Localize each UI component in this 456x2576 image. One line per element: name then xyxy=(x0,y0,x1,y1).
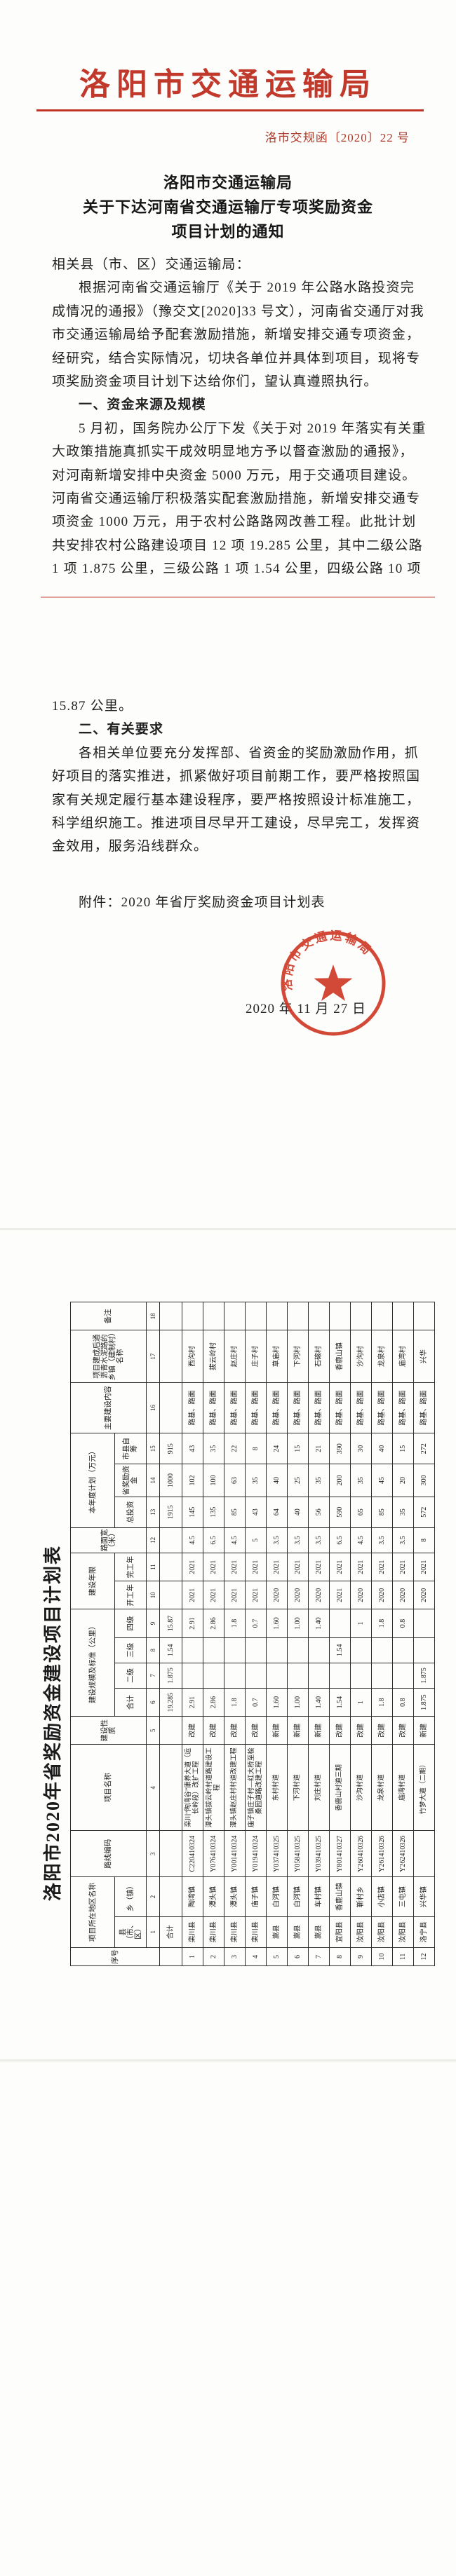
table-cell: 2020 xyxy=(309,1581,330,1609)
table-cell: 栾川县 xyxy=(182,1916,203,1947)
table-cell: 赵庄村 xyxy=(224,1330,246,1382)
body-line: 各相关单位要充分发挥部、省资金的奖励激励作用，抓 xyxy=(52,742,436,765)
table-cell: 145 xyxy=(182,1497,203,1527)
document-title: 洛阳市交通运输局关于下达河南省交通运输厅专项奖励资金项目计划的通知 xyxy=(0,170,456,244)
doc-title-line: 洛阳市交通运输局 xyxy=(0,170,456,195)
body-line: 项奖励资金项目计划下达给你们，望认真遵照执行。 xyxy=(52,370,436,393)
table-cell xyxy=(393,1663,414,1688)
attachment-line: 附件：2020 年省厅奖励资金项目计划表 xyxy=(79,892,326,911)
body-line: 成情况的通报》（豫交文[2020]33 号文），河南省交通厅对我 xyxy=(52,300,436,323)
table-group-header: 项目名称 xyxy=(71,1745,147,1831)
table-cell: 宜阳县 xyxy=(330,1916,351,1947)
table-cell: 35 xyxy=(393,1497,414,1527)
table-cell xyxy=(309,1663,330,1688)
table-sub-header: 市县自筹 xyxy=(115,1433,147,1464)
table-cell: 香鹿山村道三期 xyxy=(330,1745,351,1831)
table-cell: 12 xyxy=(414,1947,435,1965)
table-cell: 庙湾村道 xyxy=(393,1745,414,1831)
table-cell: 1.875 xyxy=(160,1663,182,1688)
table-cell: 1.875 xyxy=(414,1688,435,1716)
table-cell: 3.5 xyxy=(267,1527,288,1553)
table-cell xyxy=(351,1663,372,1688)
body-line: 项资金 1000 万元，用于农村公路路网改善工程。此批计划 xyxy=(52,510,436,533)
body-text-page1: 相关县（市、区）交通运输局：根据河南省交通运输厅《关于 2019 年公路水路投资… xyxy=(52,253,436,580)
table-cell: 改建 xyxy=(203,1717,224,1745)
table-cell: 15 xyxy=(393,1433,414,1464)
table-cell: Y019410324 xyxy=(246,1831,267,1877)
table-cell: 1.875 xyxy=(414,1663,435,1688)
table-column-number: 15 xyxy=(147,1433,160,1464)
table-cell: 潭头镇赵庄村村道改建工程 xyxy=(224,1745,246,1831)
table-cell xyxy=(351,1637,372,1663)
table-cell: 1.8 xyxy=(224,1688,246,1716)
body-line: 5 月初，国务院办公厅下发《关于对 2019 年落实有关重 xyxy=(52,417,436,440)
table-cell: 7 xyxy=(309,1947,330,1965)
table-cell: 靳村乡 xyxy=(351,1877,372,1916)
table-cell xyxy=(203,1637,224,1663)
table-cell: 6 xyxy=(288,1947,309,1965)
table-cell: Y261410326 xyxy=(372,1831,393,1877)
table-cell: 路基、路面 xyxy=(372,1382,393,1433)
table-cell: 改建 xyxy=(372,1717,393,1745)
body-line: 经研究，结合实际情况，切块各单位并具体到项目，现将专 xyxy=(52,347,436,370)
table-cell: 20 xyxy=(393,1464,414,1497)
table-cell: 300 xyxy=(414,1464,435,1497)
table-cell: 43 xyxy=(246,1497,267,1527)
table-cell: 200 xyxy=(330,1464,351,1497)
table-cell: 陶湾镇 xyxy=(182,1877,203,1916)
table-cell: Y039410325 xyxy=(309,1831,330,1877)
table-cell: 龙泉村 xyxy=(372,1330,393,1382)
appendix-table-landscape: 洛阳市2020年省奖励资金建设项目计划表 序号项目所在地区名称路线编码项目名称建… xyxy=(39,1298,442,1968)
table-cell xyxy=(160,1382,182,1433)
table-sub-header: 总投资 xyxy=(115,1497,147,1527)
body-line: 好项目的落实推进，抓紧做好项目前期工作，要严格按照国 xyxy=(52,765,436,788)
table-cell: 合计 xyxy=(160,1916,182,1947)
table-cell: 19.285 xyxy=(160,1688,182,1716)
scanned-document-page: 洛阳市交通运输局 洛市交规函〔2020〕22 号 洛阳市交通运输局关于下达河南省… xyxy=(0,0,456,2576)
table-sub-header: 二级 xyxy=(115,1663,147,1688)
table-cell: 22 xyxy=(224,1433,246,1464)
table-sub-header: 三级 xyxy=(115,1637,147,1663)
section-heading: 二、有关要求 xyxy=(52,718,436,741)
table-cell: 2 xyxy=(203,1947,224,1965)
table-cell: 6.5 xyxy=(330,1527,351,1553)
table-cell: 8 xyxy=(330,1947,351,1965)
table-cell: 100 xyxy=(203,1464,224,1497)
body-line: 大政策措施真抓实干成效明显地方予以督查激励的通报》， xyxy=(52,440,436,463)
table-column-number: 4 xyxy=(147,1745,160,1831)
body-line: 根据河南省交通运输厅《关于 2019 年公路水路投资完 xyxy=(52,276,436,299)
table-cell: 2021 xyxy=(182,1581,203,1609)
table-cell: 272 xyxy=(414,1433,435,1464)
table-cell: 改建 xyxy=(351,1717,372,1745)
table-cell: 2021 xyxy=(414,1553,435,1581)
table-cell: 路基、路面 xyxy=(414,1382,435,1433)
table-column-number: 11 xyxy=(147,1553,160,1581)
table-cell: 路基、路面 xyxy=(267,1382,288,1433)
table-cell: 西沟村 xyxy=(182,1330,203,1382)
table-cell: 2020 xyxy=(393,1581,414,1609)
table-cell: 915 xyxy=(160,1433,182,1464)
table-cell: 潭头镇拔云岭村道路建设工程 xyxy=(203,1745,224,1831)
table-group-header: 本年度计划（万元） xyxy=(71,1433,115,1528)
table-cell: 4.5 xyxy=(182,1527,203,1553)
table-cell: 45 xyxy=(372,1464,393,1497)
table-cell xyxy=(372,1637,393,1663)
table-cell: 草庙村 xyxy=(267,1330,288,1382)
table-column-number: 6 xyxy=(147,1688,160,1716)
table-cell: 3.5 xyxy=(393,1527,414,1553)
body-line: 家有关规定履行基本建设程序，要严格按照设计标准施工， xyxy=(52,789,436,812)
table-group-header: 建设规模及标准（公里） xyxy=(71,1609,115,1717)
table-cell xyxy=(224,1637,246,1663)
table-cell: 8 xyxy=(414,1527,435,1553)
table-column-number: 2 xyxy=(147,1877,160,1916)
table-cell: 2021 xyxy=(393,1553,414,1581)
body-line: 金效用，服务沿线群众。 xyxy=(52,835,436,858)
table-cell: 40 xyxy=(288,1497,309,1527)
table-cell: 1.00 xyxy=(288,1688,309,1716)
appendix-table-area: 洛阳市2020年省奖励资金建设项目计划表 序号项目所在地区名称路线编码项目名称建… xyxy=(39,1298,442,1968)
table-column-number: 3 xyxy=(147,1831,160,1877)
table-sub-header: 四级 xyxy=(115,1609,147,1637)
body-line: 科学组织施工。推进项目尽早开工建设，尽早完工，发挥资 xyxy=(52,812,436,835)
table-cell xyxy=(160,1527,182,1553)
table-cell: 2020 xyxy=(351,1581,372,1609)
table-cell: 3.5 xyxy=(372,1527,393,1553)
table-cell: 85 xyxy=(372,1497,393,1527)
table-cell: 路基、路面 xyxy=(203,1382,224,1433)
table-cell: 0.8 xyxy=(393,1609,414,1637)
table-cell: 1.54 xyxy=(330,1637,351,1663)
table-group-header: 序号 xyxy=(71,1947,160,1965)
table-cell: 35 xyxy=(351,1464,372,1497)
body-text-page2: 15.87 公里。二、有关要求各相关单位要充分发挥部、省资金的奖励激励作用，抓好… xyxy=(52,695,436,859)
table-cell xyxy=(160,1302,182,1330)
table-cell: 汝阳县 xyxy=(372,1916,393,1947)
table-cell: 潭头镇 xyxy=(224,1877,246,1916)
table-cell xyxy=(372,1663,393,1688)
official-seal: 洛 阳 市 交 通 运 输 局 xyxy=(278,928,389,1039)
table-cell: 1 xyxy=(351,1609,372,1637)
table-sub-header: 开工年 xyxy=(115,1581,147,1609)
table-cell xyxy=(267,1637,288,1663)
table-cell: 1 xyxy=(182,1947,203,1965)
table-cell xyxy=(224,1663,246,1688)
table-cell: 庙子镇 xyxy=(246,1877,267,1916)
table-cell: 2020 xyxy=(414,1581,435,1609)
table-cell: 庄子村 xyxy=(246,1330,267,1382)
table-cell: 0.7 xyxy=(246,1609,267,1637)
document-reference-number: 洛市交规函〔2020〕22 号 xyxy=(0,128,410,145)
table-cell: 590 xyxy=(330,1497,351,1527)
table-cell xyxy=(203,1663,224,1688)
table-cell: Y037410325 xyxy=(267,1831,288,1877)
table-cell: 潭头镇 xyxy=(203,1877,224,1916)
table-cell: 2021 xyxy=(267,1553,288,1581)
table-cell: 2021 xyxy=(182,1553,203,1581)
doc-title-line: 项目计划的通知 xyxy=(0,219,456,244)
body-line: 相关县（市、区）交通运输局： xyxy=(52,253,436,276)
table-cell: 路基、路面 xyxy=(288,1382,309,1433)
table-cell: 5 xyxy=(246,1527,267,1553)
table-cell: 9 xyxy=(351,1947,372,1965)
table-cell: 小店镇 xyxy=(372,1877,393,1916)
table-cell xyxy=(351,1302,372,1330)
table-cell: 栾川县 xyxy=(224,1916,246,1947)
table-column-number: 8 xyxy=(147,1637,160,1663)
table-cell: 龙泉村道 xyxy=(372,1745,393,1831)
table-cell: 1.8 xyxy=(224,1609,246,1637)
table-cell: 24 xyxy=(267,1433,288,1464)
letterhead-agency-title: 洛阳市交通运输局 xyxy=(0,59,456,104)
table-column-number: 12 xyxy=(147,1527,160,1553)
table-cell: 2021 xyxy=(330,1581,351,1609)
table-cell: 2.91 xyxy=(182,1609,203,1637)
table-cell: 2021 xyxy=(372,1553,393,1581)
table-cell: 新建 xyxy=(309,1717,330,1745)
table-column-number: 5 xyxy=(147,1717,160,1745)
table-cell: 2021 xyxy=(224,1553,246,1581)
doc-title-line: 关于下达河南省交通运输厅专项奖励资金 xyxy=(0,195,456,219)
table-cell xyxy=(160,1717,182,1745)
table-cell: 路基、路面 xyxy=(393,1382,414,1433)
table-group-header: 建设年限 xyxy=(71,1553,115,1609)
body-line: 15.87 公里。 xyxy=(52,695,436,718)
table-cell: 兴华镇 xyxy=(414,1877,435,1916)
table-cell: 10 xyxy=(372,1947,393,1965)
table-cell: 路基、路面 xyxy=(309,1382,330,1433)
table-cell xyxy=(160,1581,182,1609)
table-cell xyxy=(330,1302,351,1330)
table-cell: 改建 xyxy=(393,1717,414,1745)
table-group-header: 路线编码 xyxy=(71,1831,147,1877)
table-cell xyxy=(414,1831,435,1877)
table-cell: 3 xyxy=(224,1947,246,1965)
table-cell xyxy=(182,1637,203,1663)
table-cell: Y058410325 xyxy=(288,1831,309,1877)
table-cell: Y801410327 xyxy=(330,1831,351,1877)
table-cell xyxy=(309,1302,330,1330)
table-cell: 新建 xyxy=(414,1717,435,1745)
table-column-number: 1 xyxy=(147,1916,160,1947)
table-cell: 30 xyxy=(351,1433,372,1464)
table-group-header: 主要建设内容 xyxy=(71,1382,147,1433)
table-cell: 63 xyxy=(224,1464,246,1497)
table-cell: 0.8 xyxy=(393,1688,414,1716)
table-cell xyxy=(393,1302,414,1330)
table-sub-header: 省奖励资金 xyxy=(115,1464,147,1497)
page-edge-line-bottom xyxy=(0,2059,456,2062)
table-cell: 三屯镇 xyxy=(393,1877,414,1916)
table-cell: 下河村 xyxy=(288,1330,309,1382)
table-cell: 1.60 xyxy=(267,1688,288,1716)
body-line: 河南省交通运输厅积极落实配套激励措施，新增安排交通专 xyxy=(52,487,436,510)
table-cell: 1000 xyxy=(160,1464,182,1497)
table-cell: 15.87 xyxy=(160,1609,182,1637)
table-cell: 40 xyxy=(372,1433,393,1464)
table-cell: 102 xyxy=(182,1464,203,1497)
table-cell: 1.8 xyxy=(372,1688,393,1716)
table-column-number: 18 xyxy=(147,1302,160,1330)
table-column-number: 10 xyxy=(147,1581,160,1609)
page-break-divider xyxy=(41,597,435,598)
table-cell: 572 xyxy=(414,1497,435,1527)
table-cell: 栾川县 xyxy=(246,1916,267,1947)
table-cell xyxy=(393,1637,414,1663)
table-cell: 路基、路面 xyxy=(351,1382,372,1433)
table-cell: 43 xyxy=(182,1433,203,1464)
table-cell: 路基、路面 xyxy=(224,1382,246,1433)
table-cell xyxy=(182,1663,203,1688)
table-cell: 路基、路面 xyxy=(182,1382,203,1433)
table-cell xyxy=(182,1302,203,1330)
table-cell: Y262410326 xyxy=(393,1831,414,1877)
table-group-header: 路面宽（米） xyxy=(71,1527,147,1553)
table-cell: 2020 xyxy=(267,1581,288,1609)
table-cell xyxy=(246,1302,267,1330)
table-cell: 135 xyxy=(203,1497,224,1527)
table-column-number: 13 xyxy=(147,1497,160,1527)
table-cell: 刘庄村道 xyxy=(309,1745,330,1831)
table-cell: 64 xyxy=(267,1497,288,1527)
table-cell xyxy=(203,1302,224,1330)
table-cell: 25 xyxy=(288,1464,309,1497)
table-cell: 35 xyxy=(309,1464,330,1497)
table-cell: 汝阳县 xyxy=(351,1916,372,1947)
table-cell xyxy=(160,1877,182,1916)
seal-star-icon xyxy=(314,965,353,1001)
table-cell xyxy=(160,1831,182,1877)
table-column-number: 9 xyxy=(147,1609,160,1637)
table-cell: 改建 xyxy=(224,1717,246,1745)
table-cell xyxy=(309,1637,330,1663)
table-cell xyxy=(330,1663,351,1688)
table-cell: 56 xyxy=(309,1497,330,1527)
table-cell: 1.54 xyxy=(330,1688,351,1716)
table-column-number: 14 xyxy=(147,1464,160,1497)
table-cell: 4.5 xyxy=(224,1527,246,1553)
table-cell: 11 xyxy=(393,1947,414,1965)
table-group-header: 项目所在地区名称 xyxy=(71,1877,115,1948)
body-line: 1 项 1.875 公里，三级公路 1 项 1.54 公里，四级公路 10 项 xyxy=(52,557,436,580)
body-line: 共安排农村公路建设项目 12 项 19.285 公里，其中二级公路 xyxy=(52,534,436,557)
table-cell: 改建 xyxy=(246,1717,267,1745)
table-cell: 香鹿山镇 xyxy=(330,1877,351,1916)
table-cell: 85 xyxy=(224,1497,246,1527)
table-cell: 40 xyxy=(267,1464,288,1497)
table-cell: C220410324 xyxy=(182,1831,203,1877)
table-sub-header: 完工年 xyxy=(115,1553,147,1581)
table-cell xyxy=(288,1637,309,1663)
table-cell: 5 xyxy=(267,1947,288,1965)
table-cell: 沙沟村道 xyxy=(351,1745,372,1831)
table-cell: 2020 xyxy=(288,1581,309,1609)
table-cell: 4 xyxy=(246,1947,267,1965)
table-cell xyxy=(414,1637,435,1663)
table-cell: 8 xyxy=(246,1433,267,1464)
table-cell: 1.60 xyxy=(267,1609,288,1637)
table-cell: 6.5 xyxy=(203,1527,224,1553)
table-cell: 汝阳县 xyxy=(393,1916,414,1947)
body-line: 市交通运输局给予配套激励措施，新增安排交通专项资金， xyxy=(52,323,436,346)
table-cell: 新建 xyxy=(267,1717,288,1745)
table-cell: 4.5 xyxy=(351,1527,372,1553)
table-cell xyxy=(160,1330,182,1382)
table-cell: 路基、路面 xyxy=(246,1382,267,1433)
table-cell xyxy=(246,1663,267,1688)
table-sub-header: 乡（镇） xyxy=(115,1877,147,1916)
table-cell: 15 xyxy=(288,1433,309,1464)
table-cell: 0.7 xyxy=(246,1688,267,1716)
table-cell: 嵩县 xyxy=(267,1916,288,1947)
table-cell: 兴华 xyxy=(414,1330,435,1382)
table-cell xyxy=(372,1302,393,1330)
table-cell: 2020 xyxy=(372,1581,393,1609)
table-cell: 改建 xyxy=(330,1717,351,1745)
table-cell: Y076410324 xyxy=(203,1831,224,1877)
table-cell: 2021 xyxy=(203,1581,224,1609)
table-cell xyxy=(414,1609,435,1637)
table-cell: 庙湾村 xyxy=(393,1330,414,1382)
body-line: 对河南新增安排中央资金 5000 万元，用于交通项目建设。 xyxy=(52,464,436,487)
table-cell xyxy=(160,1947,182,1965)
table-cell: 栾川县 xyxy=(203,1916,224,1947)
table-cell xyxy=(160,1553,182,1581)
appendix-table-title: 洛阳市2020年省奖励资金建设项目计划表 xyxy=(39,1298,70,1968)
table-cell: 2021 xyxy=(203,1553,224,1581)
table-cell xyxy=(160,1745,182,1831)
table-cell: 35 xyxy=(203,1433,224,1464)
table-cell: 2021 xyxy=(288,1553,309,1581)
table-cell: 栾川“陶湾谷”康养大道（运长岭段）改扩工程 xyxy=(182,1745,203,1831)
table-cell: 拔云岭村 xyxy=(203,1330,224,1382)
table-cell: 390 xyxy=(330,1433,351,1464)
table-group-header: 建设性质 xyxy=(71,1717,147,1745)
table-cell: 2021 xyxy=(224,1581,246,1609)
table-sub-header: 合计 xyxy=(115,1688,147,1716)
table-cell: 1915 xyxy=(160,1497,182,1527)
table-cell: 嵩县 xyxy=(309,1916,330,1947)
table-cell xyxy=(330,1609,351,1637)
table-cell: Y260410326 xyxy=(351,1831,372,1877)
table-cell: 2.91 xyxy=(182,1688,203,1716)
table-cell: 白河镇 xyxy=(288,1877,309,1916)
table-cell xyxy=(246,1637,267,1663)
table-cell xyxy=(414,1302,435,1330)
table-column-number: 7 xyxy=(147,1663,160,1688)
table-cell: 2021 xyxy=(309,1553,330,1581)
letterhead-divider-rule xyxy=(36,109,424,111)
table-cell: 35 xyxy=(246,1464,267,1497)
project-plan-table: 序号项目所在地区名称路线编码项目名称建设性质建设规模及标准（公里）建设年限路面宽… xyxy=(70,1302,435,1966)
table-cell: 沙沟村 xyxy=(351,1330,372,1382)
table-cell: 石磙村 xyxy=(309,1330,330,1382)
table-cell: Y001410324 xyxy=(224,1831,246,1877)
table-cell: 1.40 xyxy=(309,1688,330,1716)
table-cell: 嵩县 xyxy=(288,1916,309,1947)
table-cell: 1.40 xyxy=(309,1609,330,1637)
table-cell: 庙子镇庄子村—红大桥至桧桑园道路改建工程 xyxy=(246,1745,267,1831)
table-cell: 21 xyxy=(309,1433,330,1464)
table-cell: 65 xyxy=(351,1497,372,1527)
table-group-header: 备注 xyxy=(71,1302,147,1330)
table-cell: 新建 xyxy=(288,1717,309,1745)
table-cell: 2.86 xyxy=(203,1688,224,1716)
table-cell: 东村村道 xyxy=(267,1745,288,1831)
table-column-number: 16 xyxy=(147,1382,160,1433)
